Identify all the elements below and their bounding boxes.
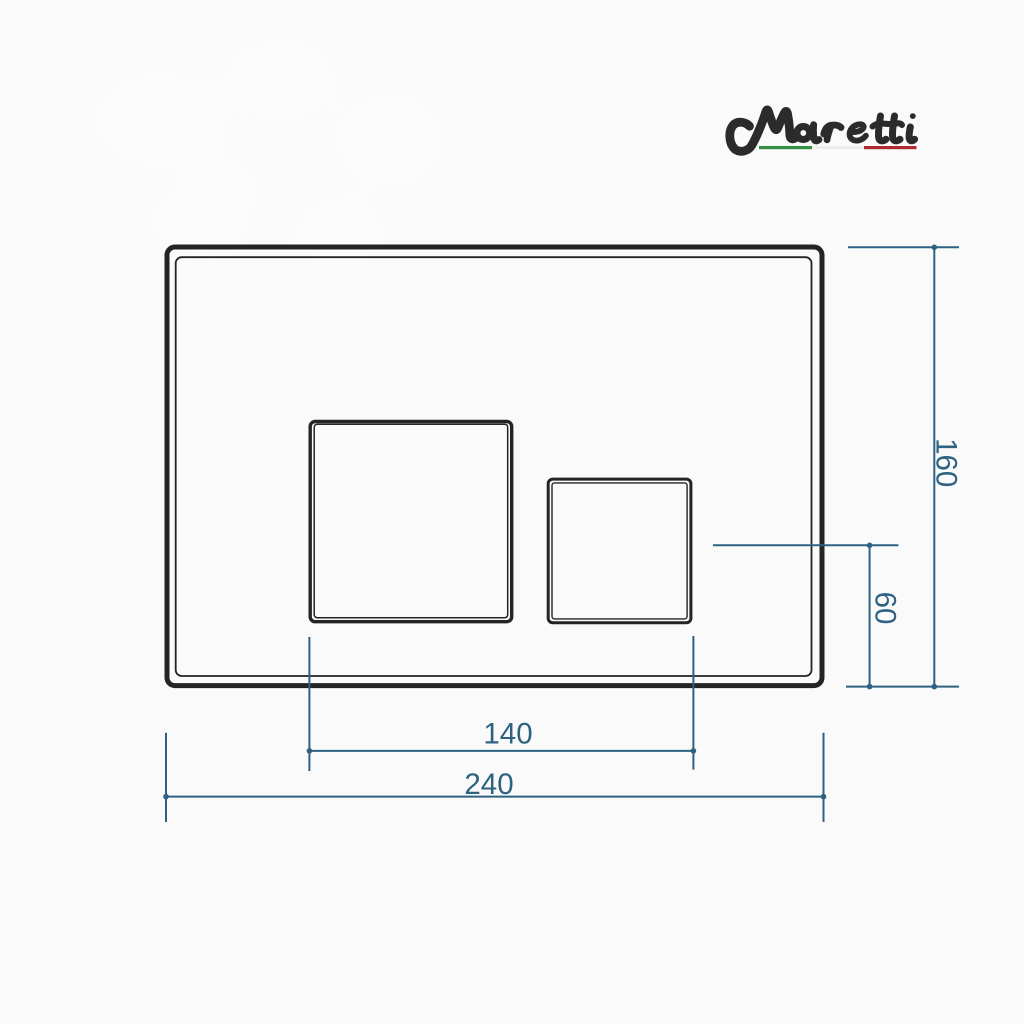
svg-text:60: 60: [868, 592, 901, 625]
svg-text:240: 240: [464, 768, 513, 801]
svg-text:140: 140: [483, 717, 532, 750]
svg-text:160: 160: [930, 438, 963, 487]
